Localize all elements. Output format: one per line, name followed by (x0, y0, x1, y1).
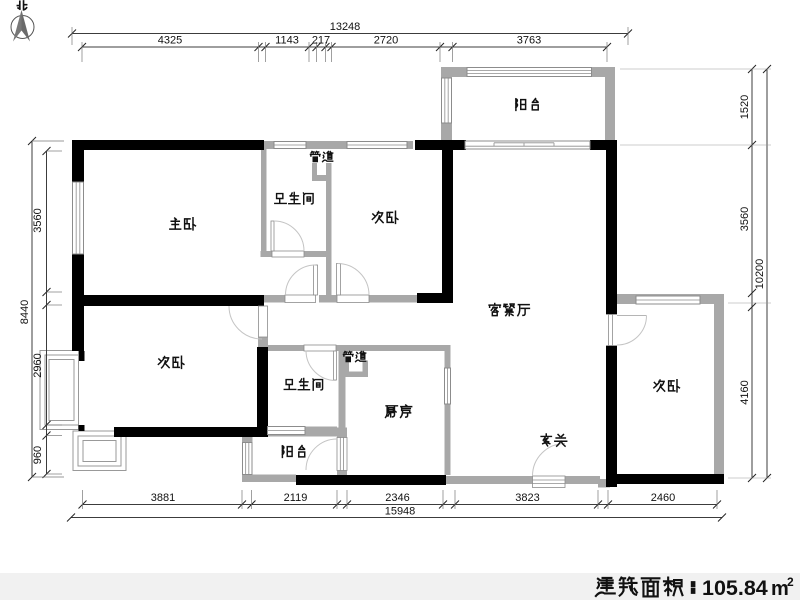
svg-text:10200: 10200 (754, 259, 766, 290)
svg-text:3763: 3763 (517, 35, 541, 47)
svg-text:960: 960 (32, 446, 44, 464)
svg-text:105.84: 105.84 (702, 576, 768, 600)
svg-text:217: 217 (312, 35, 330, 47)
svg-text:3560: 3560 (739, 207, 751, 231)
svg-text:2346: 2346 (385, 492, 409, 504)
svg-text:1143: 1143 (275, 35, 299, 47)
svg-text:2960: 2960 (32, 353, 44, 377)
svg-text:4160: 4160 (739, 380, 751, 404)
svg-text:13248: 13248 (330, 21, 361, 33)
svg-text:3560: 3560 (32, 208, 44, 232)
svg-text:3881: 3881 (151, 492, 175, 504)
svg-text:4325: 4325 (158, 35, 182, 47)
svg-text:3823: 3823 (515, 492, 539, 504)
svg-text:15948: 15948 (385, 506, 416, 518)
svg-text:1520: 1520 (739, 95, 751, 119)
svg-text:8440: 8440 (19, 300, 31, 324)
svg-text:2720: 2720 (374, 35, 398, 47)
svg-text:2119: 2119 (284, 492, 308, 504)
svg-text:2460: 2460 (651, 492, 675, 504)
svg-text:2: 2 (787, 575, 794, 589)
